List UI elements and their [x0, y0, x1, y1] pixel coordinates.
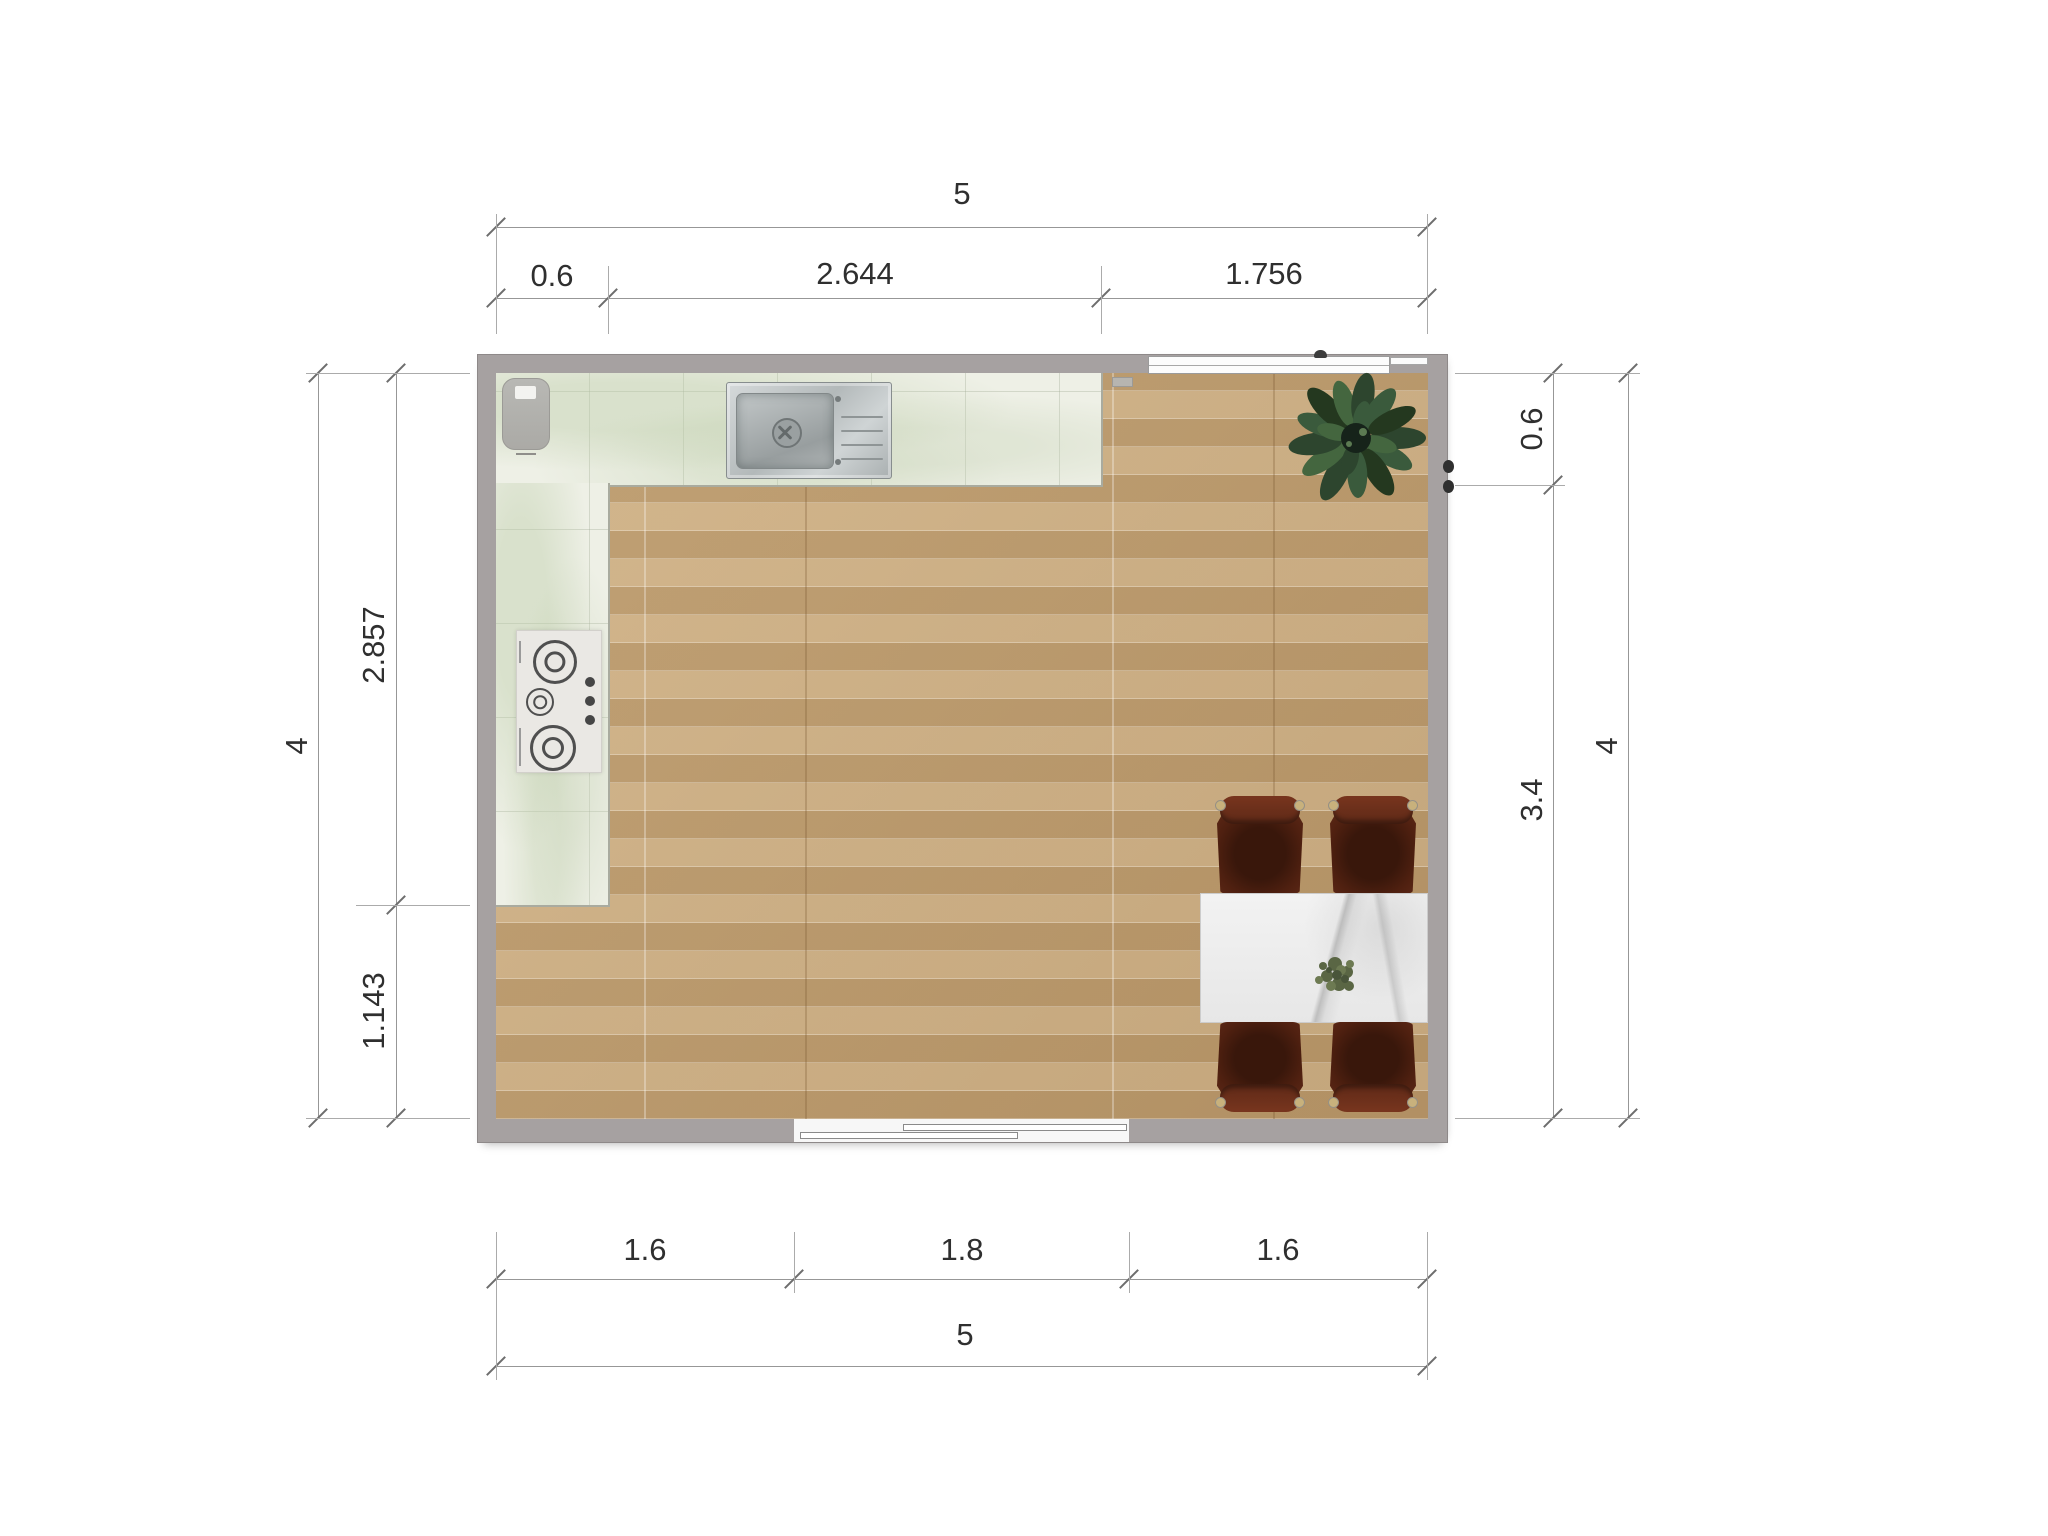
counter-item [1112, 377, 1133, 387]
dim-label-right-seg1: 0.6 [1514, 407, 1550, 450]
appliance-label-panel [515, 386, 536, 399]
dimension-line [496, 1366, 1427, 1367]
dim-label-bottom-seg3: 1.6 [1256, 1232, 1299, 1268]
gas-cooktop-icon[interactable] [516, 630, 602, 773]
stove-edge-mark [519, 728, 521, 766]
drainboard-groove [841, 430, 883, 432]
chair-arm-cap [1407, 1097, 1418, 1108]
dim-label-right-total: 4 [1589, 737, 1625, 754]
drainboard-groove [841, 444, 883, 446]
sink-basin [736, 393, 834, 469]
dimension-line [496, 1279, 1427, 1280]
stove-knob [585, 696, 595, 706]
dim-extension [1427, 1232, 1428, 1380]
chair-arm-cap [1294, 800, 1305, 811]
dim-extension [496, 1232, 497, 1380]
dim-label-top-seg2: 2.644 [816, 256, 894, 292]
dim-label-top-seg1: 0.6 [530, 258, 573, 294]
dim-label-left-seg1: 2.857 [356, 606, 392, 684]
wall-fixture-icon [1443, 460, 1455, 496]
dining-chair[interactable] [1217, 1022, 1303, 1114]
stove-edge-mark [519, 641, 521, 663]
drainboard-groove [841, 458, 883, 460]
countertop-appliance-icon[interactable] [502, 378, 550, 450]
dim-label-left-seg2: 1.143 [356, 972, 392, 1050]
dimension-line [396, 373, 397, 1118]
chair-arm-cap [1215, 800, 1226, 811]
chair-backrest [1220, 1084, 1300, 1112]
dim-extension [794, 1232, 795, 1293]
dim-extension [496, 214, 497, 334]
dimension-line [318, 373, 319, 1118]
dim-label-left-total: 4 [279, 737, 315, 754]
dim-label-bottom-total: 5 [956, 1317, 973, 1353]
dim-extension [306, 1118, 470, 1119]
appliance-cord [516, 453, 536, 455]
sliding-door-panel[interactable] [800, 1132, 1018, 1139]
dim-label-right-seg2: 3.4 [1514, 778, 1550, 821]
sink-screw [835, 459, 841, 465]
dim-extension [1455, 485, 1565, 486]
chair-backrest [1220, 796, 1300, 824]
dining-chair[interactable] [1217, 794, 1303, 894]
dining-chair[interactable] [1330, 1022, 1416, 1114]
chair-arm-cap [1407, 800, 1418, 811]
dim-extension [1101, 266, 1102, 334]
dining-chair[interactable] [1330, 794, 1416, 894]
dim-label-top-total: 5 [953, 176, 970, 212]
window-handle-icon [1314, 350, 1327, 358]
sink-drain-icon [772, 418, 802, 448]
burner-large-icon [530, 725, 576, 771]
chair-arm-cap [1215, 1097, 1226, 1108]
table-plant-icon [1305, 942, 1369, 1006]
dim-label-bottom-seg1: 1.6 [623, 1232, 666, 1268]
dim-label-top-seg3: 1.756 [1225, 256, 1303, 292]
stove-knob [585, 677, 595, 687]
burner-large-icon [533, 640, 577, 684]
chair-arm-cap [1328, 1097, 1339, 1108]
dim-extension [356, 905, 470, 906]
potted-plant-icon[interactable] [1276, 364, 1430, 524]
dimension-line [1628, 373, 1629, 1118]
dimension-line [496, 298, 1427, 299]
dimension-line [496, 227, 1427, 228]
dim-extension [1427, 214, 1428, 334]
floor-plan-canvas: 5 0.6 2.644 1.756 1.6 1.8 1.6 5 2.857 1.… [0, 0, 2048, 1536]
chair-backrest [1333, 796, 1413, 824]
chair-arm-cap [1294, 1097, 1305, 1108]
dim-extension [1455, 1118, 1640, 1119]
drainboard-groove [841, 416, 883, 418]
chair-backrest [1333, 1084, 1413, 1112]
kitchen-sink-icon[interactable] [726, 382, 892, 479]
sliding-door-panel[interactable] [903, 1124, 1127, 1131]
sink-screw [835, 396, 841, 402]
burner-small-icon [526, 688, 554, 716]
dim-label-bottom-seg2: 1.8 [940, 1232, 983, 1268]
dim-extension [608, 266, 609, 334]
chair-arm-cap [1328, 800, 1339, 811]
stove-knob [585, 715, 595, 725]
dim-extension [1455, 373, 1640, 374]
dining-table-icon[interactable] [1200, 893, 1428, 1023]
dim-extension [1129, 1232, 1130, 1293]
dim-extension [306, 373, 470, 374]
